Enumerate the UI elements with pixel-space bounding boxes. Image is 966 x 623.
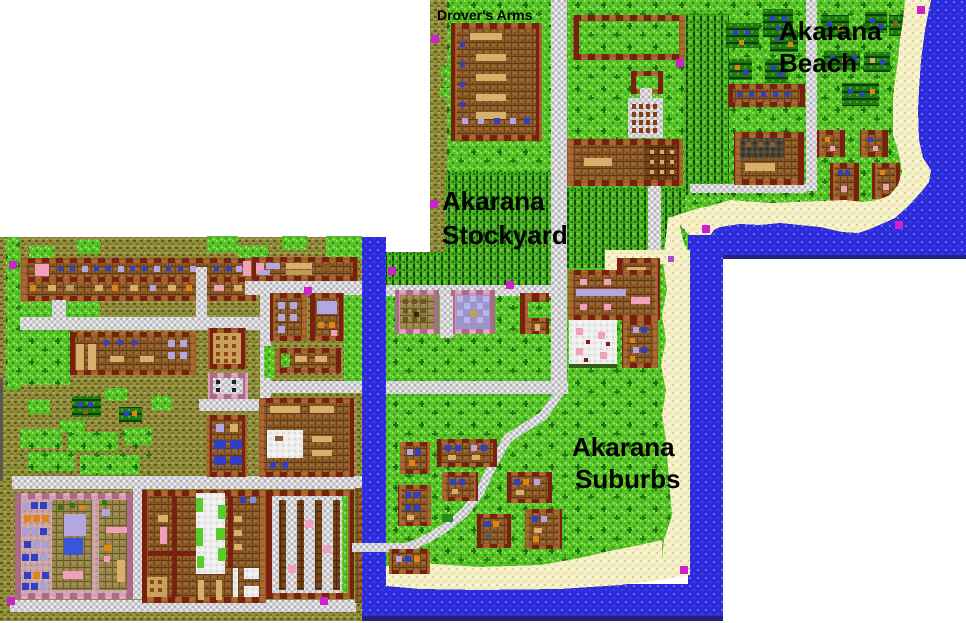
svg-text:Akarana: Akarana (572, 432, 675, 462)
svg-text:Akarana: Akarana (442, 186, 545, 216)
svg-text:Stockyard: Stockyard (442, 220, 568, 250)
svg-text:Drover's Arms: Drover's Arms (437, 7, 533, 23)
svg-text:Beach: Beach (779, 48, 857, 78)
svg-text:Suburbs: Suburbs (575, 464, 680, 494)
svg-text:Akarana: Akarana (779, 16, 882, 46)
